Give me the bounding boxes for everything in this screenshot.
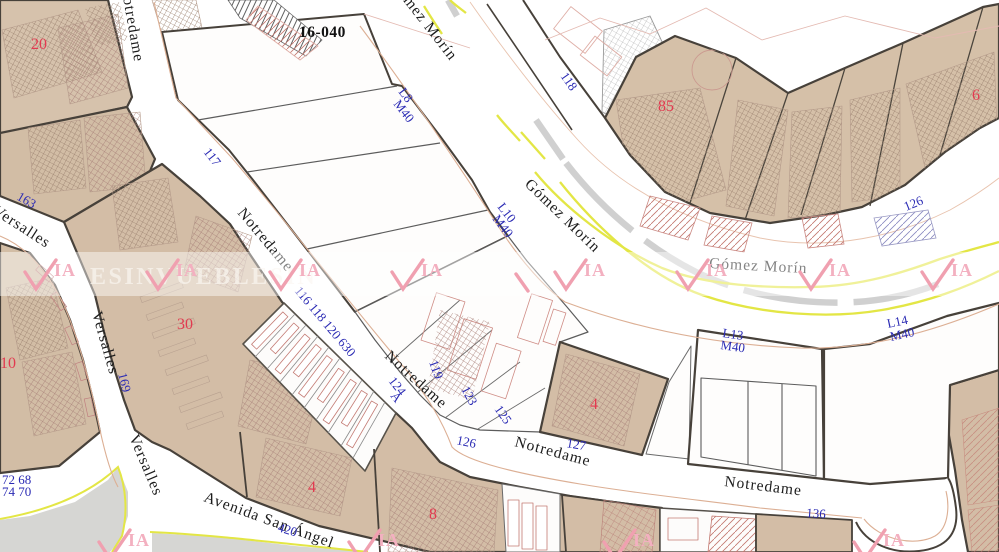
svg-text:IA: IA bbox=[584, 260, 606, 280]
svg-text:IA: IA bbox=[633, 530, 655, 550]
svg-text:IA: IA bbox=[378, 530, 400, 550]
svg-text:30: 30 bbox=[177, 316, 193, 333]
svg-text:16-040: 16-040 bbox=[299, 24, 346, 41]
svg-text:4: 4 bbox=[308, 479, 316, 496]
svg-text:IA: IA bbox=[706, 260, 728, 280]
svg-text:6: 6 bbox=[972, 87, 980, 104]
svg-text:IA: IA bbox=[299, 260, 321, 280]
svg-text:IA: IA bbox=[54, 260, 76, 280]
svg-text:8: 8 bbox=[429, 506, 437, 523]
svg-text:85: 85 bbox=[658, 98, 674, 115]
svg-text:IA: IA bbox=[176, 260, 198, 280]
svg-text:20: 20 bbox=[31, 36, 47, 53]
svg-text:IA: IA bbox=[421, 260, 443, 280]
svg-text:IA: IA bbox=[951, 260, 973, 280]
svg-text:10: 10 bbox=[0, 355, 16, 372]
svg-text:74 70: 74 70 bbox=[2, 484, 31, 499]
svg-text:4: 4 bbox=[590, 396, 598, 413]
svg-text:IA: IA bbox=[128, 530, 150, 550]
svg-text:136: 136 bbox=[806, 505, 827, 521]
svg-text:IA: IA bbox=[883, 530, 905, 550]
svg-text:IA: IA bbox=[829, 260, 851, 280]
